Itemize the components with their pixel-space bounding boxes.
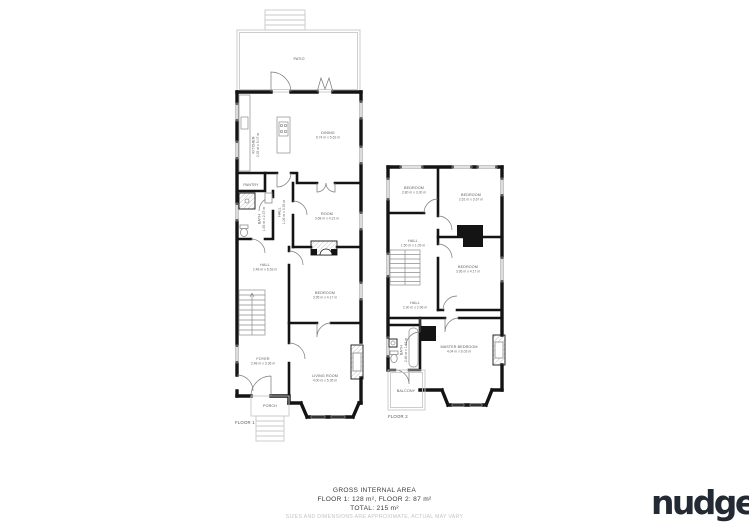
room-label-kitchen: KITCHEN 2.35 m x 5.07 m — [252, 133, 261, 157]
svg-text:ROOM: ROOM — [321, 212, 333, 216]
staircase — [239, 290, 265, 335]
floor2-plan: BEDROOM 2.80 m x 3.30 m BEDROOM 2.61 m x… — [383, 158, 518, 434]
floorplan-page: PATIO — [0, 0, 749, 530]
room-label-pantry: PANTRY — [243, 183, 259, 187]
summary-title: GROSS INTERNAL AREA — [0, 486, 749, 495]
svg-text:DINING: DINING — [321, 131, 335, 135]
room-label-hall: HALL 2.48 m x 6.53 m — [253, 263, 277, 272]
patio-steps — [265, 10, 305, 30]
svg-text:6.74 m x 5.62 m: 6.74 m x 5.62 m — [316, 136, 340, 140]
kitchen-fixtures — [239, 95, 290, 171]
room-label-bedroom-front: BEDROOM 2.61 m x 3.67 m — [459, 193, 483, 202]
svg-text:BATH: BATH — [400, 345, 404, 355]
svg-text:BEDROOM: BEDROOM — [458, 265, 478, 269]
summary-total: TOTAL: 215 m² — [0, 504, 749, 513]
svg-text:MASTER BEDROOM: MASTER BEDROOM — [440, 345, 477, 349]
summary-disclaimer: SIZES AND DIMENSIONS ARE APPROXIMATE, AC… — [0, 513, 749, 521]
svg-text:BEDROOM: BEDROOM — [461, 193, 481, 197]
porch — [251, 396, 289, 441]
svg-text:BEDROOM: BEDROOM — [404, 186, 424, 190]
svg-text:HALL: HALL — [408, 239, 418, 243]
fireplace-room — [311, 241, 337, 255]
floor2-exterior-walls — [388, 167, 502, 405]
room-label-foyer: FOYER 2.48 m x 3.36 m — [251, 357, 275, 366]
floor1-label: FLOOR 1 — [235, 420, 255, 425]
room-label-bath2: BATH 2.46 m x 1.63 m — [400, 338, 409, 362]
fireplace-master — [493, 335, 505, 365]
summary-areas: FLOOR 1: 128 m², FLOOR 2: 87 m² — [0, 495, 749, 504]
svg-text:2.48 m x 6.53 m: 2.48 m x 6.53 m — [253, 268, 277, 272]
svg-text:HALL: HALL — [278, 207, 282, 217]
svg-text:2.46 m x 1.63 m: 2.46 m x 1.63 m — [404, 338, 408, 362]
staircase-floor2 — [390, 250, 420, 285]
room-label-hall-upper: HALL 1.06 m x 3.35 m — [278, 200, 287, 224]
svg-text:1.65 m x 2.37 m: 1.65 m x 2.37 m — [262, 207, 266, 231]
svg-text:BATH: BATH — [258, 214, 262, 224]
area-summary: GROSS INTERNAL AREA FLOOR 1: 128 m², FLO… — [0, 486, 749, 521]
svg-text:1.50 m x 1.09 m: 1.50 m x 1.09 m — [401, 244, 425, 248]
floor2-label: FLOOR 2 — [388, 414, 408, 419]
room-label-bedroom-mid: BEDROOM 3.95 m x 4.17 m — [456, 265, 480, 274]
svg-text:HALL: HALL — [260, 263, 270, 267]
svg-text:3.95 m x 4.17 m: 3.95 m x 4.17 m — [456, 270, 480, 274]
svg-text:2.30 m x 2.96 m: 2.30 m x 2.96 m — [403, 306, 427, 310]
room-label-hall-landing: HALL 1.50 m x 1.09 m — [401, 239, 425, 248]
floor1-openings — [236, 72, 362, 418]
room-label-living-room: LIVING ROOM 4.00 m x 5.35 m — [312, 374, 338, 383]
svg-text:2.61 m x 3.67 m: 2.61 m x 3.67 m — [459, 198, 483, 202]
room-label-porch: PORCH — [263, 404, 277, 408]
bathroom-fixtures — [239, 193, 272, 237]
room-label-bedroom-small: BEDROOM 2.80 m x 3.30 m — [402, 186, 426, 195]
fireplace-living — [351, 345, 363, 379]
svg-text:3.95 m x 4.17 m: 3.95 m x 4.17 m — [313, 296, 337, 300]
room-label-hall2: HALL 2.30 m x 2.96 m — [403, 301, 427, 310]
svg-text:2.35 m x 5.07 m: 2.35 m x 5.07 m — [256, 133, 260, 157]
svg-text:4.00 m x 5.35 m: 4.00 m x 5.35 m — [313, 379, 337, 383]
room-label-dining: DINING 6.74 m x 5.62 m — [316, 131, 340, 140]
svg-text:2.48 m x 3.36 m: 2.48 m x 3.36 m — [251, 362, 275, 366]
svg-text:LIVING ROOM: LIVING ROOM — [312, 374, 338, 378]
room-label-room: ROOM 3.68 m x 4.21 m — [315, 212, 339, 221]
patio: PATIO — [237, 30, 360, 92]
svg-text:2.80 m x 3.30 m: 2.80 m x 3.30 m — [402, 191, 426, 195]
chimney-lower — [421, 326, 436, 341]
room-label-bedroom: BEDROOM 3.95 m x 4.17 m — [313, 291, 337, 300]
chimney-upper — [457, 225, 483, 237]
room-label-patio: PATIO — [293, 57, 304, 61]
svg-text:1.06 m x 3.35 m: 1.06 m x 3.35 m — [282, 200, 286, 224]
floor1-plan: PATIO — [225, 5, 375, 443]
svg-text:KITCHEN: KITCHEN — [252, 136, 256, 153]
svg-text:4.04 m x 6.03 m: 4.04 m x 6.03 m — [447, 350, 471, 354]
room-label-balcony: BALCONY — [397, 389, 416, 393]
svg-text:HALL: HALL — [410, 301, 420, 305]
chimney-upper-2 — [463, 237, 483, 247]
svg-text:FOYER: FOYER — [256, 357, 270, 361]
room-label-master-bedroom: MASTER BEDROOM 4.04 m x 6.03 m — [440, 345, 477, 354]
nudge-logo: nudge — [651, 483, 747, 522]
svg-text:3.68 m x 4.21 m: 3.68 m x 4.21 m — [315, 217, 339, 221]
svg-text:BEDROOM: BEDROOM — [315, 291, 335, 295]
